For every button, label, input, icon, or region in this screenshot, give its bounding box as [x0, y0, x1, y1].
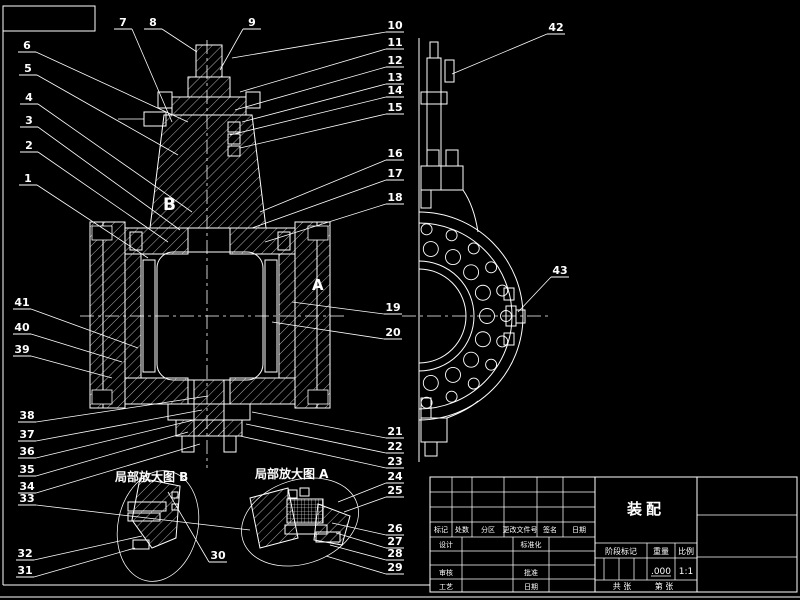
callout-9-number: 9	[248, 16, 256, 29]
callout-38-number: 38	[19, 409, 34, 422]
cad-drawing-canvas: B A	[0, 0, 800, 600]
right-pipe-flange	[295, 222, 330, 408]
tb-zone-label: 分区	[481, 525, 495, 534]
tb-weight-label: 重量	[653, 546, 669, 556]
bolt-hole	[423, 375, 438, 390]
callout-21-leader	[252, 412, 386, 438]
flange-bolt-hole	[308, 226, 328, 240]
trunnion-bolt	[182, 436, 194, 452]
callout-17-number: 17	[387, 167, 402, 180]
callout-28-number: 28	[387, 547, 402, 560]
tb-date-label: 日期	[572, 526, 586, 534]
bracket-bolt	[446, 150, 458, 166]
detail-b-ring	[133, 540, 149, 549]
tb-change-file-label: 更改文件号	[503, 525, 538, 534]
tb-signature-label: 签名	[543, 525, 557, 534]
callout-31-leader	[34, 548, 135, 577]
tb-process-label: 工艺	[439, 583, 453, 591]
detail-a-label: 局部放大图 A	[255, 466, 329, 481]
callout-8-number: 8	[149, 16, 157, 29]
callout-40-number: 40	[14, 321, 30, 334]
tb-sheet-total: 共 张	[613, 582, 632, 591]
callout-23-number: 23	[387, 455, 402, 468]
title-block: 标记 处数 分区 更改文件号 签名 日期 设计 标准化 审核 批准 工艺 日期 …	[430, 477, 797, 592]
callout-29-number: 29	[387, 561, 402, 574]
cad-drawing-svg: B A	[0, 0, 800, 600]
callout-18-number: 18	[387, 191, 402, 204]
valve-stem-top	[196, 45, 222, 77]
callout-3-number: 3	[25, 114, 33, 127]
left-pipe-flange	[90, 222, 125, 408]
side-port-nut	[516, 310, 525, 323]
bolt-hole	[497, 285, 508, 296]
callout-17-leader	[252, 180, 386, 228]
bolt-hole	[486, 262, 497, 273]
top-bracket	[421, 166, 463, 190]
bottom-bracket	[421, 418, 447, 442]
callout-31-number: 31	[17, 564, 32, 577]
callout-9-leader	[220, 29, 243, 70]
bolt-hole	[446, 250, 461, 265]
callout-6-number: 6	[23, 39, 31, 52]
bottom-bolt	[425, 442, 437, 456]
callout-32-number: 32	[17, 547, 32, 560]
detail-b-label: 局部放大图 B	[115, 469, 188, 484]
trunnion-bolt	[224, 436, 236, 452]
callout-5-number: 5	[24, 62, 32, 75]
callout-36-number: 36	[19, 445, 35, 458]
callout-41-number: 41	[14, 296, 29, 309]
callout-24-number: 24	[387, 470, 403, 483]
callout-11-number: 11	[387, 36, 402, 49]
callout-28-leader	[330, 545, 386, 560]
stem-cap	[430, 42, 438, 58]
section-marker-b: B	[163, 195, 176, 215]
callout-8-leader	[162, 29, 197, 52]
callout-33-number: 33	[19, 492, 34, 505]
callout-12-number: 12	[387, 54, 402, 67]
trunnion-flange	[176, 420, 242, 436]
callout-37-number: 37	[19, 428, 34, 441]
callout-15-number: 15	[387, 101, 402, 114]
tb-mark-label: 标记	[434, 525, 448, 534]
detail-a-spring	[287, 499, 323, 523]
bolt-hole	[421, 397, 432, 408]
tb-count-label: 处数	[455, 525, 469, 534]
flange-bolt-hole	[308, 390, 328, 404]
callout-10-number: 10	[387, 19, 403, 32]
bolt-hole	[475, 285, 490, 300]
callout-25-number: 25	[387, 484, 402, 497]
callout-35-number: 35	[19, 463, 34, 476]
bolt-hole	[468, 378, 479, 389]
callout-39-number: 39	[14, 343, 29, 356]
drawing-title: 装配	[626, 500, 665, 518]
tb-check-label: 审核	[439, 568, 453, 577]
callout-4-number: 4	[25, 91, 33, 104]
callout-16-leader	[260, 160, 386, 212]
bolt-hole	[468, 243, 479, 254]
tb-date2-label: 日期	[524, 583, 538, 591]
callout-26-number: 26	[387, 522, 403, 535]
callout-7-number: 7	[119, 16, 127, 29]
detail-a-pin	[300, 488, 309, 496]
callout-25-leader	[344, 497, 386, 512]
callout-32-leader	[34, 536, 142, 560]
bracket-step	[421, 190, 431, 208]
bolt-hole	[475, 332, 490, 347]
callout-42-number: 42	[548, 21, 563, 34]
bolt-hole	[423, 242, 438, 257]
gland-bolt-right	[246, 92, 260, 108]
bolt-hole	[446, 367, 461, 382]
callout-7-leader	[132, 29, 172, 122]
bolt-hole	[486, 359, 497, 370]
flange-bolt-hole	[92, 390, 112, 404]
main-section-view: B A	[80, 40, 348, 468]
callout-29-leader	[326, 556, 386, 574]
section-marker-a: A	[312, 276, 324, 294]
bracket-bolt	[427, 150, 439, 166]
callout-14-number: 14	[387, 84, 403, 97]
body-wall-right	[279, 254, 295, 378]
callout-21-number: 21	[387, 425, 402, 438]
end-view	[402, 38, 548, 462]
callout-19-number: 19	[385, 301, 400, 314]
callout-11-leader	[240, 49, 386, 92]
callout-34-number: 34	[19, 480, 35, 493]
callout-36-leader	[36, 420, 194, 458]
tb-standardization-label: 标准化	[521, 540, 542, 549]
bolt-hole	[464, 352, 479, 367]
bolt-hole	[464, 265, 479, 280]
top-left-box	[3, 6, 95, 31]
callout-13-leader	[242, 84, 386, 122]
callout-1-number: 1	[24, 172, 32, 185]
callout-2-number: 2	[25, 139, 33, 152]
callout-10-leader	[232, 32, 386, 58]
callout-23-leader	[240, 436, 386, 468]
detail-view-b: 局部放大图 B	[107, 463, 209, 589]
body-wall-left	[125, 254, 141, 378]
callout-30-number: 30	[210, 549, 226, 562]
callout-43-leader	[518, 277, 551, 312]
tb-scale-label: 比例	[678, 546, 694, 556]
tb-sheet-no: 第 张	[655, 581, 674, 591]
bolt-hole	[421, 224, 432, 235]
tb-weight-value: .000	[651, 567, 671, 577]
yoke-collar	[421, 92, 447, 104]
callout-14-leader	[230, 97, 386, 135]
bolt-hole	[446, 391, 457, 402]
callout-13-number: 13	[387, 71, 402, 84]
bolt-hole	[446, 230, 457, 241]
callout-15-leader	[240, 114, 386, 148]
tb-design-label: 设计	[439, 540, 453, 549]
gland-flange	[172, 97, 246, 115]
callout-43-number: 43	[552, 264, 567, 277]
callout-16-number: 16	[387, 147, 403, 160]
callout-22-leader	[246, 424, 386, 453]
callout-42-leader	[452, 34, 547, 74]
body-bottom-right	[230, 378, 295, 404]
tb-approve-label: 批准	[524, 568, 538, 577]
tb-stage-mark-label: 阶段标记	[605, 546, 637, 556]
callout-22-number: 22	[387, 440, 402, 453]
tb-scale-value: 1:1	[679, 567, 693, 577]
mounting-stud	[445, 60, 454, 82]
valve-stem-step	[188, 77, 230, 97]
callout-20-number: 20	[385, 326, 401, 339]
